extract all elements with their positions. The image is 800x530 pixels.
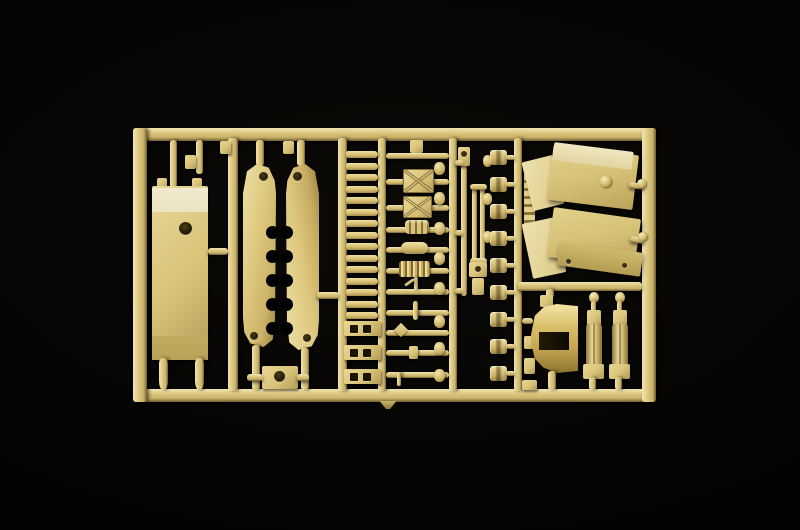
side-knob-4 — [434, 252, 445, 265]
track-rung-14 — [346, 301, 378, 308]
frame-bottom-runner — [133, 389, 656, 402]
skirt-right-stub-bottom — [301, 348, 309, 390]
skirt-right-hole-top — [293, 172, 302, 181]
track-rung-3 — [346, 174, 378, 181]
horn-cone-notch — [539, 332, 569, 350]
skirt-left-notch-5 — [266, 322, 279, 335]
hull-plate-peg-a — [159, 358, 168, 390]
fender-dot-b — [622, 263, 627, 268]
rod-knob-2 — [483, 193, 492, 205]
cradle-block-hole — [475, 266, 481, 272]
frame-top-runner — [133, 128, 656, 141]
bracket-part-hole — [274, 371, 285, 382]
skirt-left-stub-bottom — [252, 345, 260, 390]
hang-tab-a — [220, 141, 231, 154]
skirt-right-hole-bottom — [303, 334, 311, 342]
small-part-c — [522, 380, 537, 390]
clip-stub-5 — [506, 263, 515, 268]
capsule-part — [401, 242, 428, 254]
track-rung-7 — [346, 220, 378, 227]
track-rung-10 — [346, 255, 378, 262]
side-knob-low-1 — [434, 315, 445, 328]
model-sprue-photo — [0, 0, 800, 530]
small-part-b — [524, 358, 535, 374]
track-rung-11 — [346, 266, 378, 273]
rung-hole-right-1 — [363, 325, 371, 333]
cradle-rail-a — [472, 188, 477, 266]
hull-plate-hole — [179, 222, 192, 235]
side-knob-2 — [434, 192, 445, 205]
rung-hole-left-1 — [350, 325, 358, 333]
part-rod-0 — [386, 153, 449, 159]
hull-plate-cream-band — [152, 188, 208, 212]
barrel-tab-hole — [461, 151, 467, 157]
clip-stub-4 — [506, 236, 515, 241]
corrugated-part — [399, 261, 430, 277]
rod-collar — [409, 346, 418, 359]
clip-part-1 — [490, 150, 507, 165]
track-rung-4 — [346, 186, 378, 193]
stowage-box-b — [403, 196, 432, 218]
hull-plate-peg-b — [195, 358, 204, 390]
skirt-right-notch-5 — [280, 322, 293, 335]
fender-top-peg-ball — [637, 179, 646, 188]
runner-a — [228, 138, 238, 391]
skirt-left-hole-top — [259, 172, 268, 181]
rung-hole-right-2 — [363, 349, 371, 357]
shock-foot-b — [615, 377, 622, 390]
rod-stub-c — [455, 288, 463, 294]
bracket-arm-left — [247, 374, 263, 381]
fender-dot-a — [566, 259, 571, 264]
track-rung-2 — [346, 163, 378, 170]
skirt-right-notch-4 — [280, 298, 293, 311]
shock-body-a — [586, 324, 602, 366]
frame-left-runner — [133, 128, 147, 402]
clip-stub-2 — [506, 182, 515, 187]
clip-part-2 — [490, 177, 507, 192]
barrel-rod — [461, 150, 467, 296]
mid-hang-tab — [410, 140, 423, 153]
rod-stub-b — [455, 230, 463, 236]
clip-stub-3 — [506, 209, 515, 214]
plate-hanger-tab — [185, 155, 196, 169]
clip-stub-8 — [506, 344, 515, 349]
track-rung-15 — [346, 312, 378, 319]
rod-stub-a — [455, 160, 463, 166]
fender-top-ball — [600, 176, 611, 187]
rung-hole-left-3 — [350, 373, 358, 381]
track-rung-6 — [346, 209, 378, 216]
skirt-left-notch-4 — [266, 298, 279, 311]
rung-hole-right-3 — [363, 373, 371, 381]
runner-d — [449, 138, 457, 391]
clip-part-9 — [490, 366, 507, 381]
clip-part-7 — [490, 312, 507, 327]
track-rung-8 — [346, 232, 378, 239]
shock-body-b — [612, 324, 628, 366]
shock-foot-a — [589, 377, 596, 390]
clip-stub-9 — [506, 371, 515, 376]
skirt-left-notch-2 — [266, 250, 279, 263]
side-knob-low-3 — [434, 369, 445, 382]
stowage-box-a — [403, 169, 434, 193]
clip-part-8 — [490, 339, 507, 354]
cone-side-stub — [522, 318, 533, 324]
skirt-right-notch-1 — [280, 226, 293, 239]
rung-hole-left-2 — [350, 349, 358, 357]
frame-right-runner — [642, 128, 656, 402]
plate-hanger-b — [196, 140, 203, 174]
clip-part-3 — [490, 204, 507, 219]
runner-e — [514, 138, 522, 391]
sprue-gate-tab — [378, 401, 398, 409]
clip-part-4 — [490, 231, 507, 246]
side-knob-5 — [434, 282, 445, 295]
track-rung-13 — [346, 289, 378, 296]
clip-stub-6 — [506, 290, 515, 295]
clip-part-5 — [490, 258, 507, 273]
skirt-left-hole-bottom — [250, 332, 258, 340]
side-knob-1 — [434, 162, 445, 175]
side-knob-3 — [434, 222, 445, 235]
hull-plate-olive-band — [152, 336, 208, 360]
bracket-arm-right — [297, 374, 309, 381]
ringed-cylinder — [405, 220, 429, 234]
track-rung-9 — [346, 243, 378, 250]
skirt-right-notch-3 — [280, 274, 293, 287]
cross-fitting — [413, 301, 418, 320]
hang-tab-b — [283, 141, 294, 154]
side-knob-low-2 — [434, 342, 445, 355]
skirt-left-notch-1 — [266, 226, 279, 239]
clip-stub-1 — [506, 155, 515, 160]
plate-side-stub — [208, 248, 228, 255]
skirt-right-stub-top — [297, 140, 305, 166]
runner-divider — [518, 282, 642, 291]
clip-stub-7 — [506, 317, 515, 322]
cone-bottom-stub — [548, 371, 556, 390]
fender-bottom-peg-ball — [638, 232, 647, 241]
prong-down — [397, 372, 401, 386]
plate-hanger-a — [170, 140, 177, 188]
clip-part-6 — [490, 285, 507, 300]
track-rung-12 — [346, 278, 378, 285]
track-rung-1 — [346, 151, 378, 158]
skirt-left-stub-top — [256, 140, 264, 166]
prong-up — [414, 277, 418, 290]
skirt-right-notch-2 — [280, 250, 293, 263]
cone-top-tab — [540, 295, 553, 307]
skirt-right-side-stub — [317, 292, 339, 299]
cradle-cross-top — [470, 184, 487, 190]
barrel-end-block — [472, 278, 484, 295]
track-rung-5 — [346, 197, 378, 204]
skirt-left-notch-3 — [266, 274, 279, 287]
hull-plate — [152, 186, 208, 360]
